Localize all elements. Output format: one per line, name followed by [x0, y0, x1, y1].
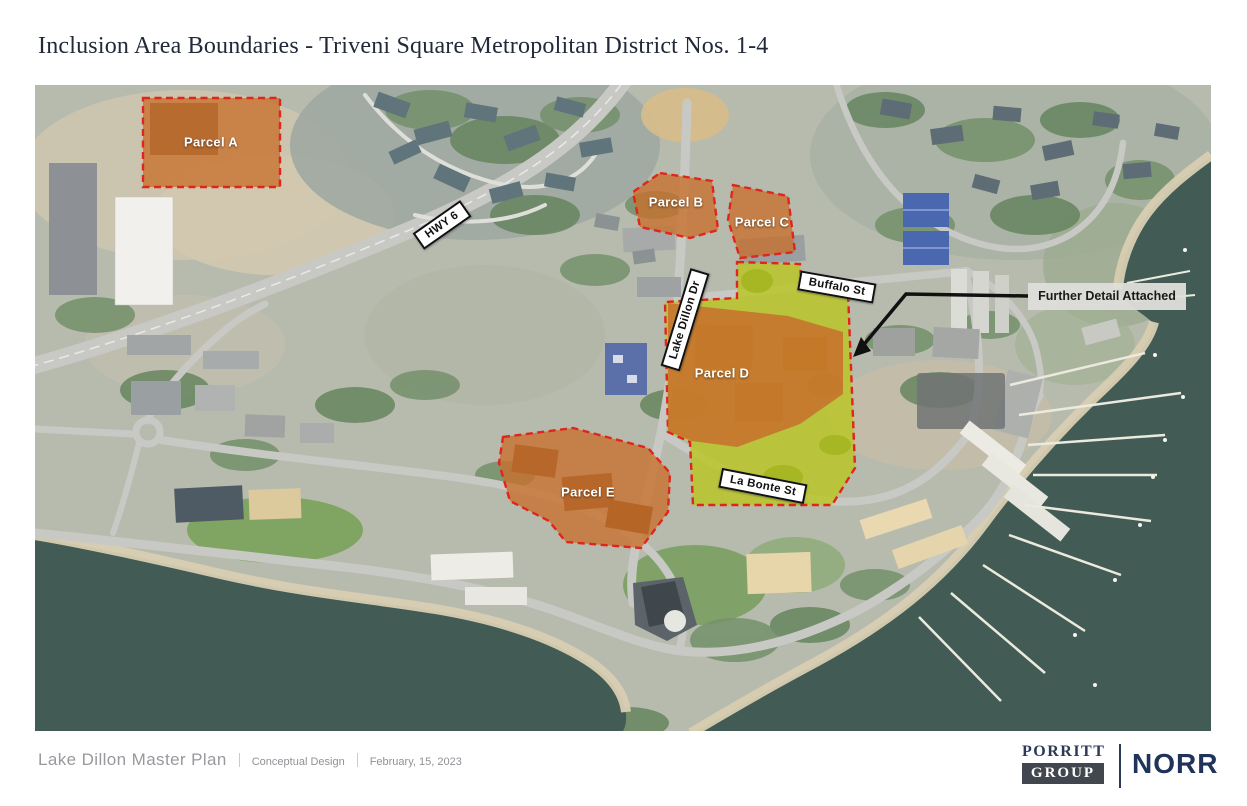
porritt-logo-text: PORRITT [1022, 742, 1104, 762]
project-name: Lake Dillon Master Plan [38, 750, 227, 770]
parcel-b-label: Parcel B [649, 195, 703, 210]
further-detail-note: Further Detail Attached [1028, 283, 1186, 310]
aerial-map: Parcel A Parcel B Parcel C Parcel D Parc… [35, 85, 1211, 731]
sheet-credits: Lake Dillon Master Plan Conceptual Desig… [38, 750, 462, 770]
plan-sheet: Inclusion Area Boundaries - Triveni Squa… [0, 0, 1247, 806]
date-label: February, 15, 2023 [370, 756, 462, 768]
divider [239, 753, 240, 767]
group-logo-text: GROUP [1022, 763, 1104, 784]
porritt-group-logo: PORRITT GROUP [1022, 742, 1104, 784]
footer: Lake Dillon Master Plan Conceptual Desig… [0, 742, 1247, 802]
page-title: Inclusion Area Boundaries - Triveni Squa… [38, 33, 769, 60]
divider [357, 753, 358, 767]
logo-divider [1119, 744, 1121, 788]
norr-logo: NORR [1132, 748, 1218, 780]
parcel-c-label: Parcel C [735, 215, 789, 230]
parcel-a-label: Parcel A [184, 135, 238, 150]
phase-label: Conceptual Design [252, 756, 345, 768]
parcel-e-label: Parcel E [561, 485, 615, 500]
parking-lot [917, 373, 1005, 429]
parcel-d-label: Parcel D [695, 366, 749, 381]
aerial-basemap [35, 85, 1211, 731]
